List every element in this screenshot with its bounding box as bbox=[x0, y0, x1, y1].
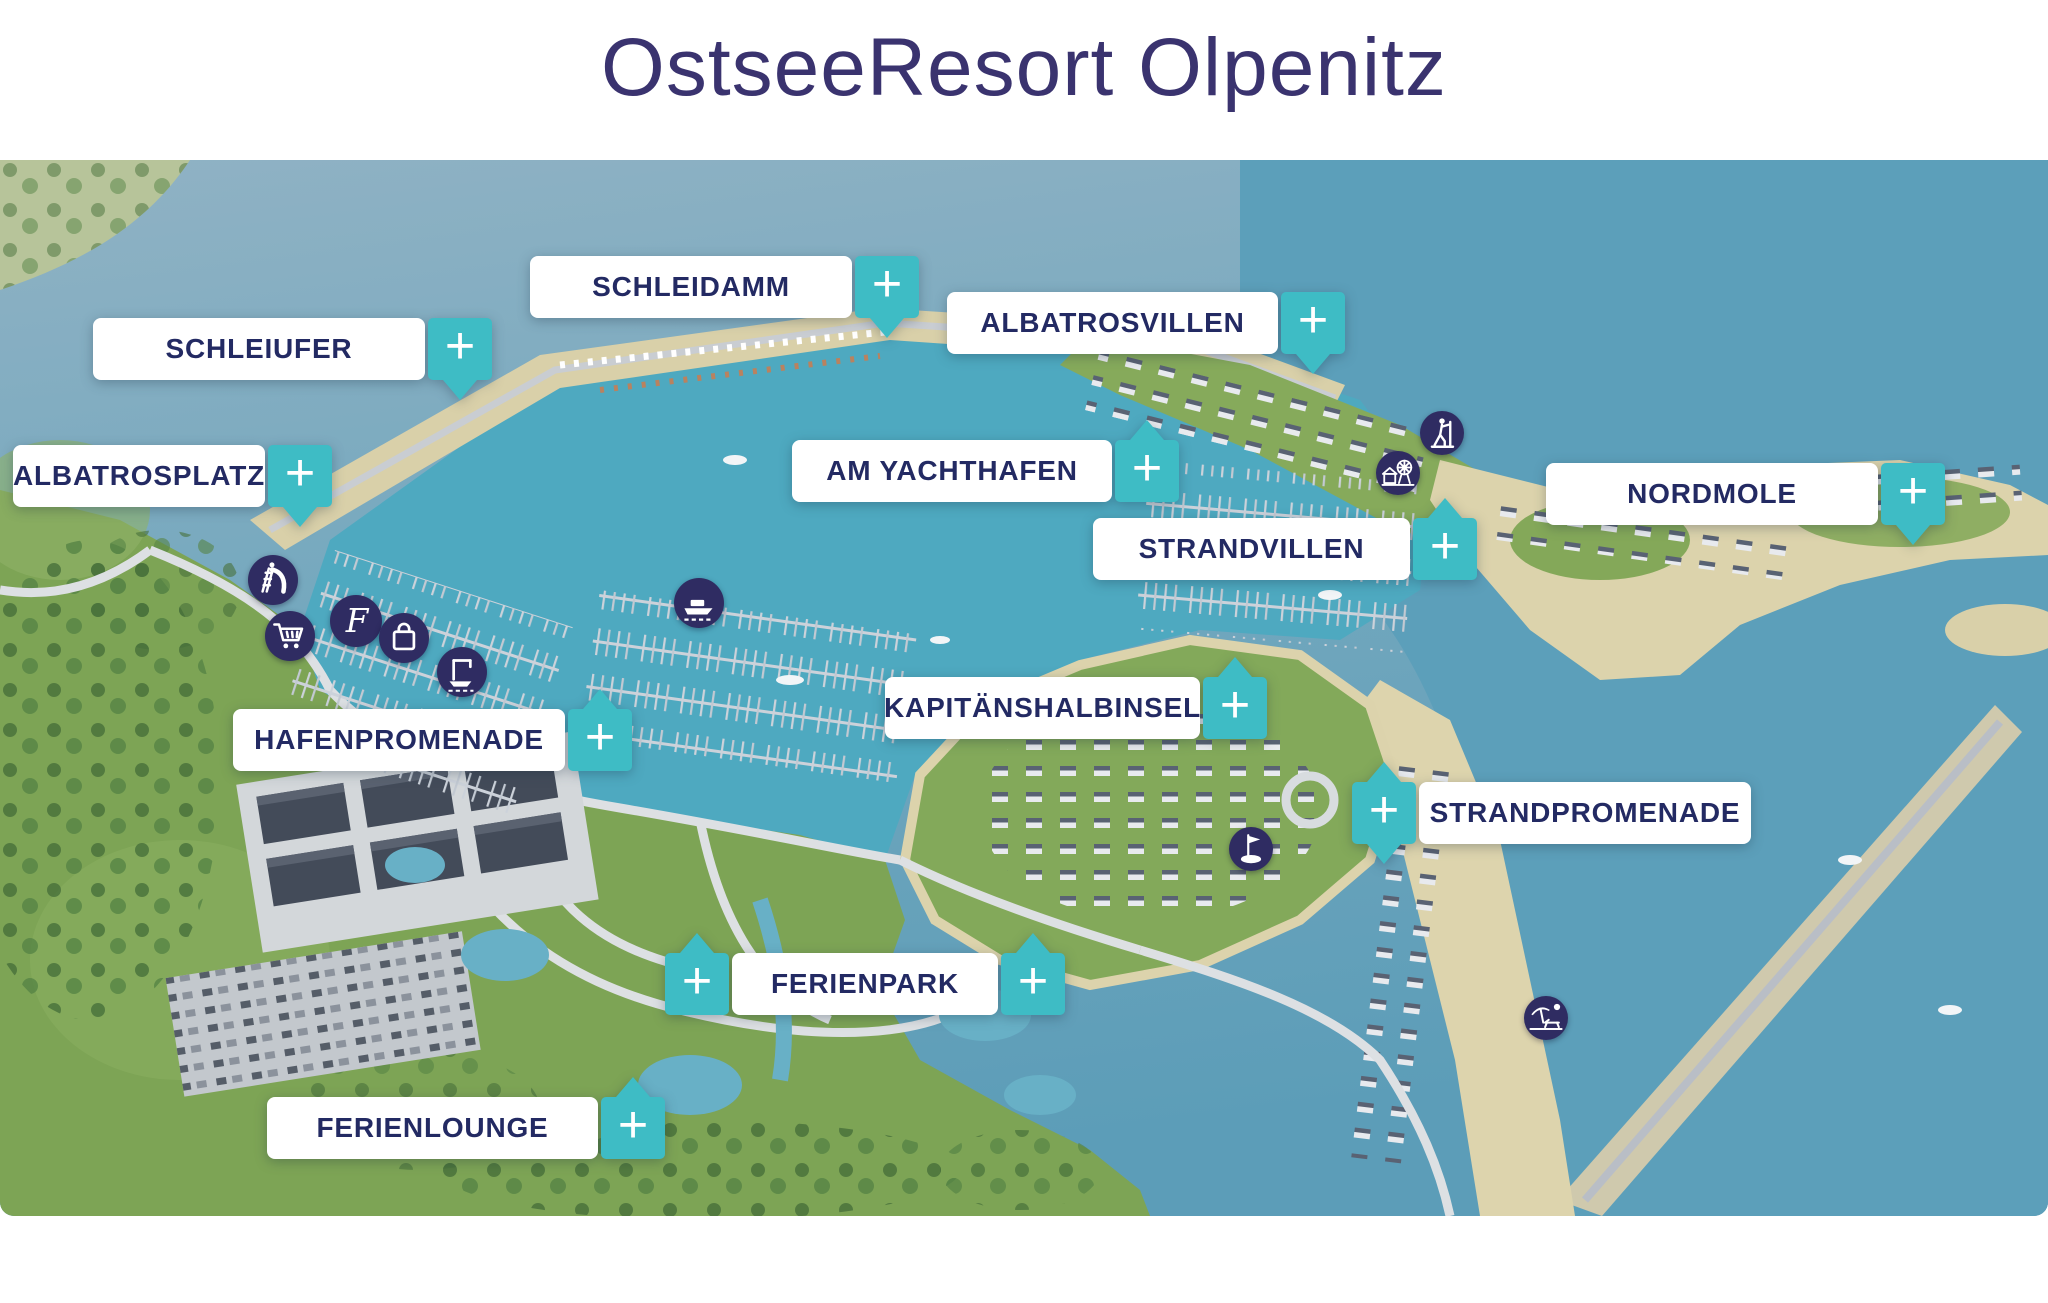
boat-crane-icon[interactable] bbox=[437, 647, 487, 697]
marker-label: AM YACHTHAFEN bbox=[792, 440, 1112, 502]
plus-button[interactable]: + bbox=[1203, 677, 1267, 739]
plus-button[interactable]: + bbox=[1352, 782, 1416, 844]
amusement-icon[interactable] bbox=[1376, 451, 1420, 495]
plus-button[interactable]: + bbox=[1413, 518, 1477, 580]
marker-label: FERIENPARK bbox=[732, 953, 998, 1015]
plus-button[interactable]: + bbox=[665, 953, 729, 1015]
marker-kapitaenshalbinsel[interactable]: KAPITÄNSHALBINSEL + bbox=[885, 677, 1267, 739]
marker-label: SCHLEIDAMM bbox=[530, 256, 852, 318]
hiking-icon[interactable] bbox=[1420, 411, 1464, 455]
plus-button[interactable]: + bbox=[268, 445, 332, 507]
plus-button[interactable]: + bbox=[1281, 292, 1345, 354]
marker-hafenpromenade[interactable]: HAFENPROMENADE + bbox=[233, 709, 632, 771]
svg-text:F: F bbox=[345, 602, 370, 640]
marker-albatrosplatz[interactable]: ALBATROSPLATZ + bbox=[13, 445, 332, 507]
page-title: OstseeResort Olpenitz bbox=[0, 8, 2048, 128]
plus-button[interactable]: + bbox=[568, 709, 632, 771]
marker-strandvillen[interactable]: STRANDVILLEN + bbox=[1093, 518, 1477, 580]
marker-am-yachthafen[interactable]: AM YACHTHAFEN + bbox=[792, 440, 1179, 502]
shopping-cart-icon[interactable] bbox=[265, 611, 315, 661]
marker-schleiufer[interactable]: SCHLEIUFER + bbox=[93, 318, 492, 380]
plus-button[interactable]: + bbox=[428, 318, 492, 380]
plus-button[interactable]: + bbox=[601, 1097, 665, 1159]
golf-icon[interactable] bbox=[1229, 827, 1273, 871]
marker-ferienpark[interactable]: + FERIENPARK + bbox=[665, 953, 1065, 1015]
beach-icon[interactable] bbox=[1524, 996, 1568, 1040]
plus-button[interactable]: + bbox=[855, 256, 919, 318]
marker-nordmole[interactable]: NORDMOLE + bbox=[1546, 463, 1945, 525]
marker-label: ALBATROSPLATZ bbox=[13, 445, 265, 507]
marker-label: SCHLEIUFER bbox=[93, 318, 425, 380]
marker-label: KAPITÄNSHALBINSEL bbox=[885, 677, 1200, 739]
marker-ferienlounge[interactable]: FERIENLOUNGE + bbox=[267, 1097, 665, 1159]
marker-label: STRANDVILLEN bbox=[1093, 518, 1410, 580]
resort-map: SCHLEIDAMM + SCHLEIUFER + ALBATROSVILLEN… bbox=[0, 160, 2048, 1216]
marker-schleidamm[interactable]: SCHLEIDAMM + bbox=[530, 256, 919, 318]
marker-strandpromenade[interactable]: + STRANDPROMENADE bbox=[1352, 782, 1751, 844]
plus-button[interactable]: + bbox=[1001, 953, 1065, 1015]
plus-button[interactable]: + bbox=[1881, 463, 1945, 525]
marker-label: FERIENLOUNGE bbox=[267, 1097, 598, 1159]
marker-albatrosvillen[interactable]: ALBATROSVILLEN + bbox=[947, 292, 1345, 354]
monogram-f-icon[interactable]: F bbox=[330, 595, 382, 647]
ferry-icon[interactable] bbox=[674, 578, 724, 628]
marker-label: ALBATROSVILLEN bbox=[947, 292, 1278, 354]
plus-button[interactable]: + bbox=[1115, 440, 1179, 502]
marker-label: HAFENPROMENADE bbox=[233, 709, 565, 771]
marker-label: NORDMOLE bbox=[1546, 463, 1878, 525]
waterslide-icon[interactable] bbox=[248, 555, 298, 605]
shopping-bag-icon[interactable] bbox=[379, 613, 429, 663]
marker-label: STRANDPROMENADE bbox=[1419, 782, 1751, 844]
